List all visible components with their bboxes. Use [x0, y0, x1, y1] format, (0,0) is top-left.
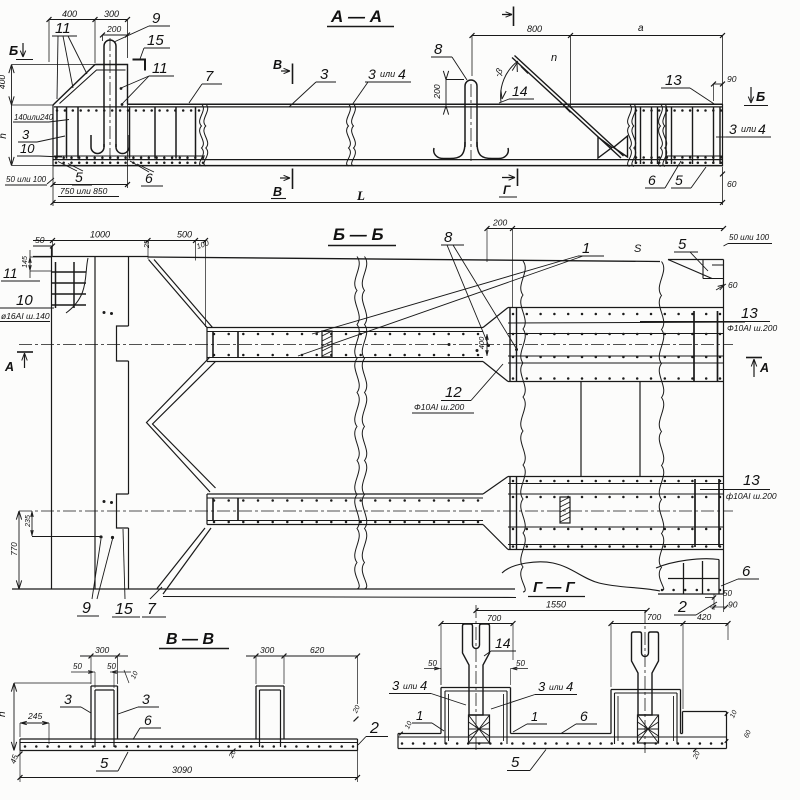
svg-text:3: 3 [320, 66, 329, 83]
svg-text:6: 6 [648, 172, 656, 188]
svg-text:11: 11 [55, 20, 71, 37]
svg-text:В: В [273, 58, 282, 72]
svg-text:800: 800 [527, 24, 542, 34]
svg-text:или: или [380, 69, 395, 79]
svg-text:3: 3 [142, 691, 150, 707]
svg-text:8: 8 [434, 41, 443, 58]
svg-text:245: 245 [27, 711, 42, 721]
svg-text:50 или 100: 50 или 100 [729, 233, 770, 242]
svg-text:1: 1 [531, 709, 538, 724]
svg-text:15: 15 [147, 32, 164, 49]
svg-text:300: 300 [260, 645, 274, 655]
svg-text:ф10АΙ ш.200: ф10АΙ ш.200 [726, 491, 777, 501]
svg-text:50: 50 [516, 659, 525, 668]
svg-text:13: 13 [743, 472, 760, 489]
svg-text:200: 200 [492, 218, 507, 228]
svg-text:200: 200 [432, 84, 442, 99]
svg-text:14: 14 [495, 635, 511, 651]
svg-text:3: 3 [22, 127, 30, 142]
svg-text:5: 5 [75, 169, 83, 185]
svg-text:6: 6 [144, 712, 152, 728]
svg-text:3: 3 [729, 121, 737, 137]
svg-text:В: В [273, 185, 282, 199]
svg-text:Г: Г [503, 183, 511, 197]
svg-text:50 или 100: 50 или 100 [6, 175, 47, 184]
svg-text:А — А: А — А [330, 7, 382, 26]
svg-text:235: 235 [25, 515, 32, 528]
svg-text:145: 145 [22, 256, 29, 268]
svg-text:1: 1 [582, 240, 590, 257]
svg-text:90: 90 [728, 600, 738, 610]
svg-text:13: 13 [665, 72, 682, 89]
svg-text:Г — Г: Г — Г [533, 579, 576, 596]
svg-text:770: 770 [10, 542, 19, 556]
svg-text:300: 300 [95, 645, 109, 655]
svg-text:13: 13 [741, 305, 758, 322]
svg-text:420: 420 [697, 612, 711, 622]
svg-text:6: 6 [145, 170, 153, 186]
svg-text:3090: 3090 [172, 765, 192, 775]
svg-text:14: 14 [512, 83, 528, 99]
svg-text:50: 50 [107, 662, 116, 671]
svg-text:Б — Б: Б — Б [333, 225, 384, 244]
svg-text:4: 4 [758, 121, 766, 137]
svg-text:9: 9 [82, 600, 91, 617]
svg-text:Ф10АΙ ш.200: Ф10АΙ ш.200 [727, 323, 777, 333]
svg-text:а: а [638, 23, 644, 34]
svg-text:3: 3 [368, 66, 376, 82]
svg-text:50: 50 [428, 659, 437, 668]
svg-text:750 или 850: 750 или 850 [60, 186, 108, 196]
svg-text:50: 50 [723, 589, 732, 598]
svg-text:1: 1 [416, 708, 423, 723]
svg-text:4: 4 [566, 679, 573, 694]
svg-text:400: 400 [477, 336, 486, 349]
svg-text:5: 5 [511, 754, 520, 771]
svg-text:2: 2 [677, 599, 687, 616]
svg-text:700: 700 [647, 612, 661, 622]
svg-text:8: 8 [444, 229, 453, 246]
svg-text:60: 60 [727, 179, 737, 189]
svg-text:Б: Б [9, 43, 18, 58]
svg-text:6: 6 [580, 708, 588, 724]
svg-text:400: 400 [62, 9, 77, 19]
svg-text:7: 7 [205, 68, 214, 85]
svg-text:1000: 1000 [90, 230, 110, 240]
svg-text:4: 4 [398, 66, 406, 82]
svg-text:12: 12 [445, 384, 462, 401]
svg-text:11: 11 [3, 265, 18, 281]
svg-text:300: 300 [104, 9, 119, 19]
svg-text:400: 400 [0, 75, 7, 89]
svg-text:9: 9 [152, 10, 161, 27]
svg-text:или: или [403, 681, 418, 691]
svg-text:90: 90 [727, 74, 737, 84]
svg-text:n: n [551, 52, 557, 64]
svg-text:6: 6 [742, 563, 751, 580]
svg-text:h: h [0, 133, 9, 139]
svg-text:200: 200 [106, 24, 121, 34]
svg-text:50: 50 [73, 662, 82, 671]
svg-text:5: 5 [678, 236, 687, 253]
svg-text:А: А [759, 361, 769, 375]
svg-text:3: 3 [538, 679, 546, 694]
svg-text:11: 11 [152, 60, 168, 77]
svg-text:ø16АΙ ш.140: ø16АΙ ш.140 [1, 311, 50, 321]
svg-text:3: 3 [64, 691, 72, 707]
svg-text:60: 60 [728, 280, 738, 290]
svg-text:2: 2 [369, 720, 379, 737]
svg-text:10: 10 [16, 292, 33, 309]
svg-text:В — В: В — В [166, 631, 214, 648]
svg-text:Б: Б [756, 89, 765, 104]
svg-text:10: 10 [20, 141, 35, 156]
svg-text:3: 3 [392, 678, 400, 693]
svg-text:1550: 1550 [546, 600, 566, 610]
svg-text:А: А [4, 360, 14, 374]
svg-text:620: 620 [310, 645, 324, 655]
svg-text:50: 50 [35, 235, 45, 245]
svg-text:500: 500 [177, 230, 192, 240]
svg-text:140или240: 140или240 [14, 113, 54, 122]
svg-text:700: 700 [487, 613, 501, 623]
svg-text:Ф10АΙ ш.200: Ф10АΙ ш.200 [414, 402, 464, 412]
svg-text:4: 4 [420, 678, 427, 693]
svg-text:15: 15 [115, 601, 133, 618]
svg-text:5: 5 [100, 755, 109, 772]
svg-text:L: L [356, 188, 365, 203]
svg-text:h: h [0, 711, 8, 717]
svg-text:25: 25 [144, 240, 151, 249]
svg-text:S: S [634, 243, 642, 255]
svg-text:7: 7 [147, 601, 157, 618]
svg-text:или: или [741, 124, 756, 134]
svg-text:или: или [549, 682, 564, 692]
svg-text:5: 5 [675, 172, 683, 188]
